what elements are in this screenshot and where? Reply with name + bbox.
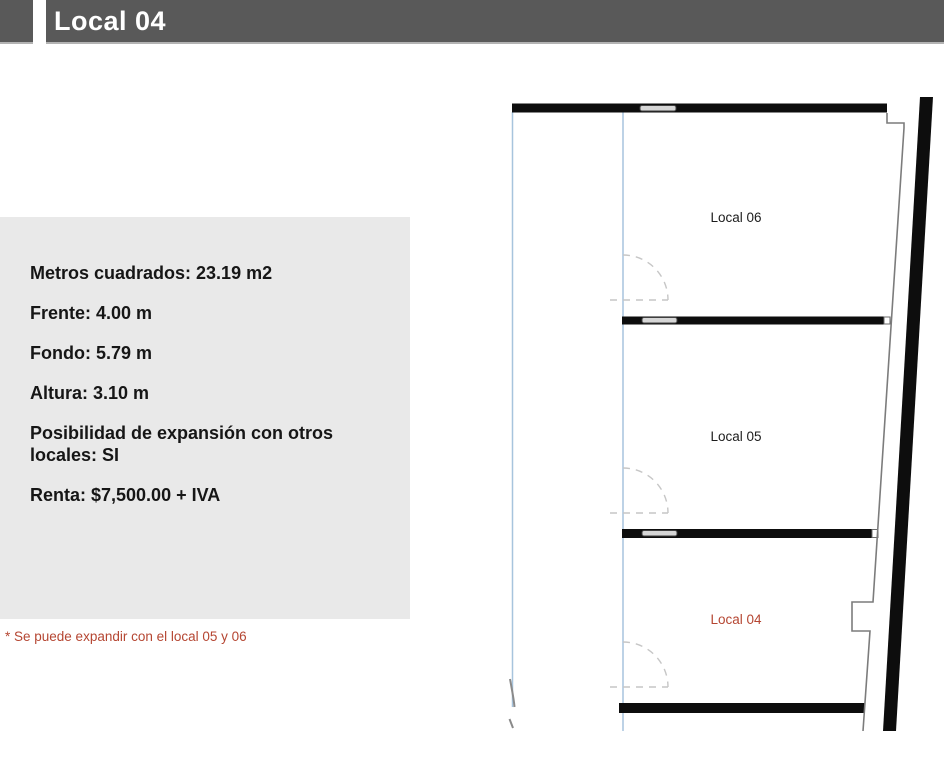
slide: Local 04 Metros cuadrados: 23.19 m2 Fren… xyxy=(0,0,944,768)
wall-endcap-upper xyxy=(884,317,890,324)
sketch-mark-2 xyxy=(510,719,514,728)
room-label-local-04: Local 04 xyxy=(710,612,762,627)
door-local04 xyxy=(610,642,668,687)
door-arc-local06 xyxy=(623,255,668,300)
wall-bottom xyxy=(619,703,865,713)
door-local06 xyxy=(610,255,668,300)
window-marker-middle xyxy=(642,318,677,324)
floorplan: Local 06 Local 05 Local 04 xyxy=(0,0,944,768)
wall-right-outer xyxy=(883,97,933,731)
door-arc-local04 xyxy=(623,642,668,687)
room-label-local-06: Local 06 xyxy=(710,210,761,225)
window-marker-lower xyxy=(642,531,677,537)
wall-top xyxy=(512,104,887,113)
window-marker-top xyxy=(640,106,676,112)
room-label-local-05: Local 05 xyxy=(710,429,761,444)
door-local05 xyxy=(610,468,668,513)
door-arc-local05 xyxy=(623,468,668,513)
